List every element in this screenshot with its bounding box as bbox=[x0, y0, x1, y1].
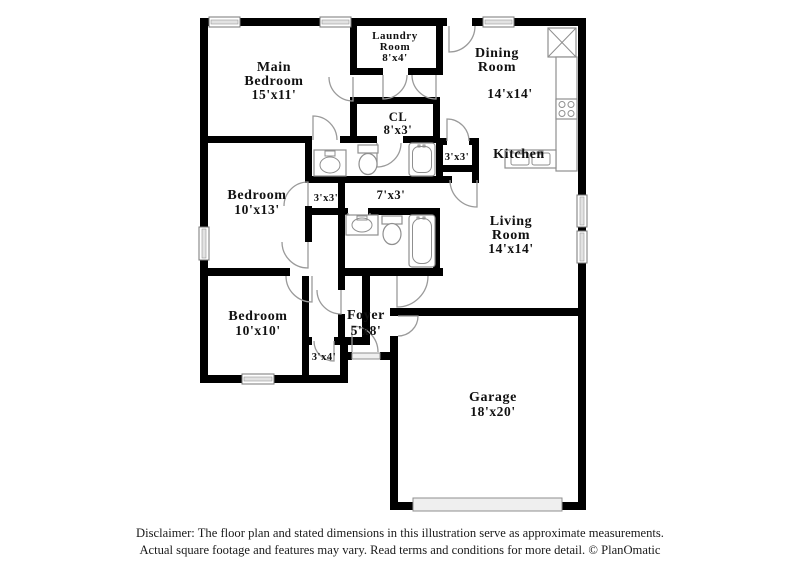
room-dims-closet-cl: 8'x3' bbox=[384, 123, 413, 137]
foyer-passage-door-arc bbox=[397, 276, 428, 307]
closet-cl-door-arc bbox=[377, 143, 401, 167]
front-door-threshold bbox=[352, 353, 380, 359]
room-label-bedroom-3: Bedroom bbox=[228, 309, 287, 324]
corridor-door-arc bbox=[412, 75, 436, 99]
pantry-door-arc bbox=[447, 119, 469, 141]
stove-icon bbox=[556, 99, 577, 119]
room-label-dining: Room bbox=[478, 60, 516, 75]
window bbox=[577, 195, 587, 227]
toilet-icon bbox=[382, 216, 402, 245]
back-door-arc bbox=[449, 26, 475, 52]
room-label-living: Living bbox=[490, 214, 533, 229]
room-dims-hall: 7'x3' bbox=[377, 188, 406, 202]
floor-plan-page: Main Bedroom 15'x11' Laundry Room 8'x4' … bbox=[0, 0, 800, 582]
hall-door-arc bbox=[450, 180, 477, 207]
fridge-icon bbox=[548, 28, 576, 57]
room-dims-laundry: 8'x4' bbox=[382, 52, 408, 64]
bathroom1-door-arc bbox=[313, 116, 337, 140]
room-label-kitchen: Kitchen bbox=[493, 147, 545, 162]
room-dims-closet-2: 3'x3' bbox=[314, 193, 339, 204]
bathtub-icon bbox=[409, 143, 435, 176]
disclaimer-line-2: Actual square footage and features may v… bbox=[0, 543, 800, 558]
toilet-icon bbox=[358, 145, 378, 175]
linen-closet-door-arc bbox=[317, 290, 341, 314]
vanity-sink-icon bbox=[346, 215, 378, 235]
room-label-bedroom-2: Bedroom bbox=[227, 188, 286, 203]
laundry-door-arc bbox=[383, 75, 407, 99]
bathtub-icon bbox=[409, 215, 435, 267]
room-label-closet-cl: CL bbox=[389, 110, 408, 124]
closet2-door-arc bbox=[284, 182, 308, 206]
room-dims-pantry: 3'x3' bbox=[445, 152, 470, 163]
window bbox=[209, 17, 240, 27]
room-dims-dining: 14'x14' bbox=[487, 86, 532, 101]
room-label-foyer: Foyer bbox=[347, 308, 385, 323]
room-label-garage: Garage bbox=[469, 390, 517, 405]
room-dims-bedroom-2: 10'x13' bbox=[234, 202, 279, 217]
room-label-dining: Dining bbox=[475, 46, 519, 61]
floorplan-svg: Main Bedroom 15'x11' Laundry Room 8'x4' … bbox=[0, 0, 800, 582]
room-dims-closet-3: 3'x4' bbox=[312, 352, 337, 363]
window bbox=[320, 17, 351, 27]
garage-entry-door-arc bbox=[398, 316, 418, 336]
main-bedroom-door-arc bbox=[329, 77, 353, 101]
room-dims-foyer: 5'x8' bbox=[351, 323, 382, 338]
room-dims-living: 14'x14' bbox=[488, 241, 533, 256]
window bbox=[577, 231, 587, 263]
room-label-main-bedroom: Main bbox=[257, 60, 291, 75]
room-dims-main-bedroom: 15'x11' bbox=[252, 87, 297, 102]
window bbox=[483, 17, 514, 27]
garage-door bbox=[413, 498, 562, 511]
window bbox=[242, 374, 274, 384]
room-dims-bedroom-3: 10'x10' bbox=[235, 323, 280, 338]
disclaimer-line-1: Disclaimer: The floor plan and stated di… bbox=[0, 526, 800, 541]
bedroom2-door-arc bbox=[282, 242, 308, 268]
vanity-sink-icon bbox=[314, 150, 346, 176]
window bbox=[199, 227, 209, 260]
room-dims-garage: 18'x20' bbox=[470, 404, 515, 419]
